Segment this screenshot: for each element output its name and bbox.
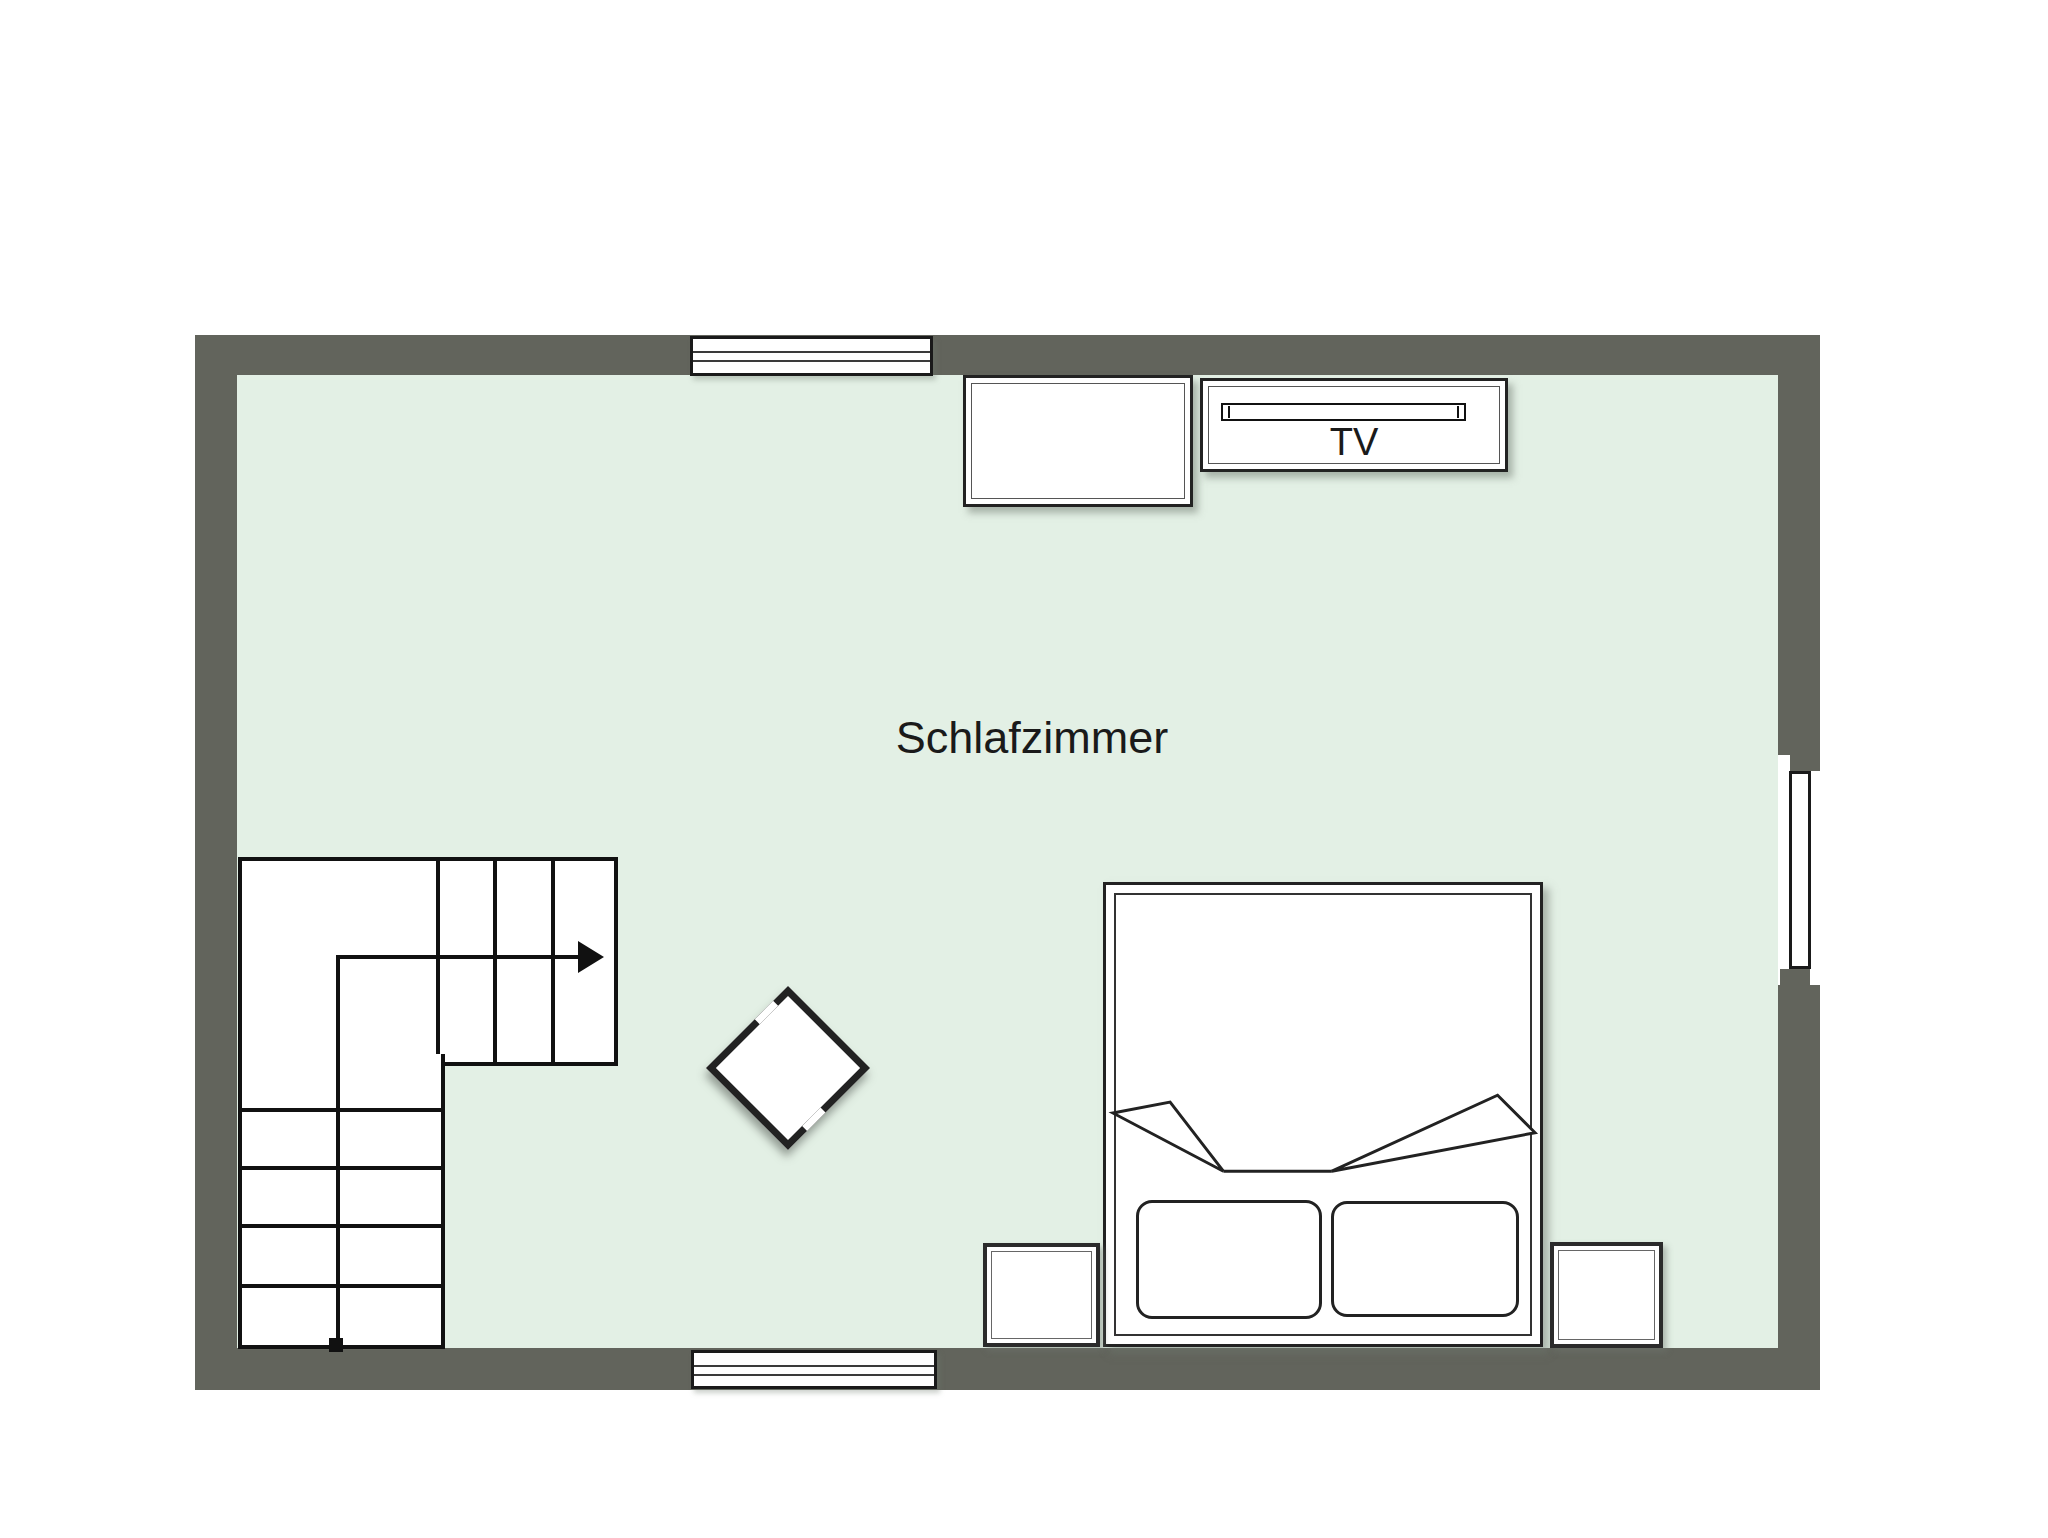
double-bed-icon (1103, 882, 1543, 1347)
stair-tread (551, 861, 555, 1062)
room-name-label: Schlafzimmer (832, 712, 1232, 764)
window-bottom-icon (691, 1350, 937, 1389)
stair-tread (242, 1224, 441, 1228)
tv-label: TV (1203, 421, 1505, 464)
window-jamb (1780, 969, 1810, 985)
stair-tread (436, 861, 440, 1062)
stair-tread (242, 1166, 441, 1170)
window-mullion (694, 1365, 934, 1367)
stair-upper-run (238, 857, 618, 1066)
staircase-icon (238, 857, 610, 1345)
stair-walkline (336, 955, 581, 959)
stair-direction-arrow-icon (578, 941, 604, 973)
window-mullion (693, 351, 930, 353)
stair-lower-run (238, 1054, 445, 1349)
pillow-right (1331, 1201, 1519, 1317)
window-top-icon (690, 336, 933, 376)
tv-screen-icon (1221, 403, 1466, 421)
nightstand-left (983, 1243, 1100, 1347)
stair-walkline (336, 957, 340, 1345)
dresser (963, 375, 1193, 507)
nightstand-right (1550, 1242, 1663, 1348)
window-right-icon (1789, 771, 1811, 969)
stair-walkline-start-dot (329, 1338, 343, 1352)
window-mullion (694, 1374, 934, 1376)
stair-tread (242, 1108, 441, 1112)
stair-tread (242, 1284, 441, 1288)
pillow-left (1136, 1200, 1322, 1319)
window-mullion (693, 360, 930, 362)
window-jamb (1790, 755, 1820, 771)
stair-tread (493, 861, 497, 1062)
floorplan-canvas: TV Sch (0, 0, 2048, 1538)
tv-sideboard: TV (1200, 378, 1508, 472)
